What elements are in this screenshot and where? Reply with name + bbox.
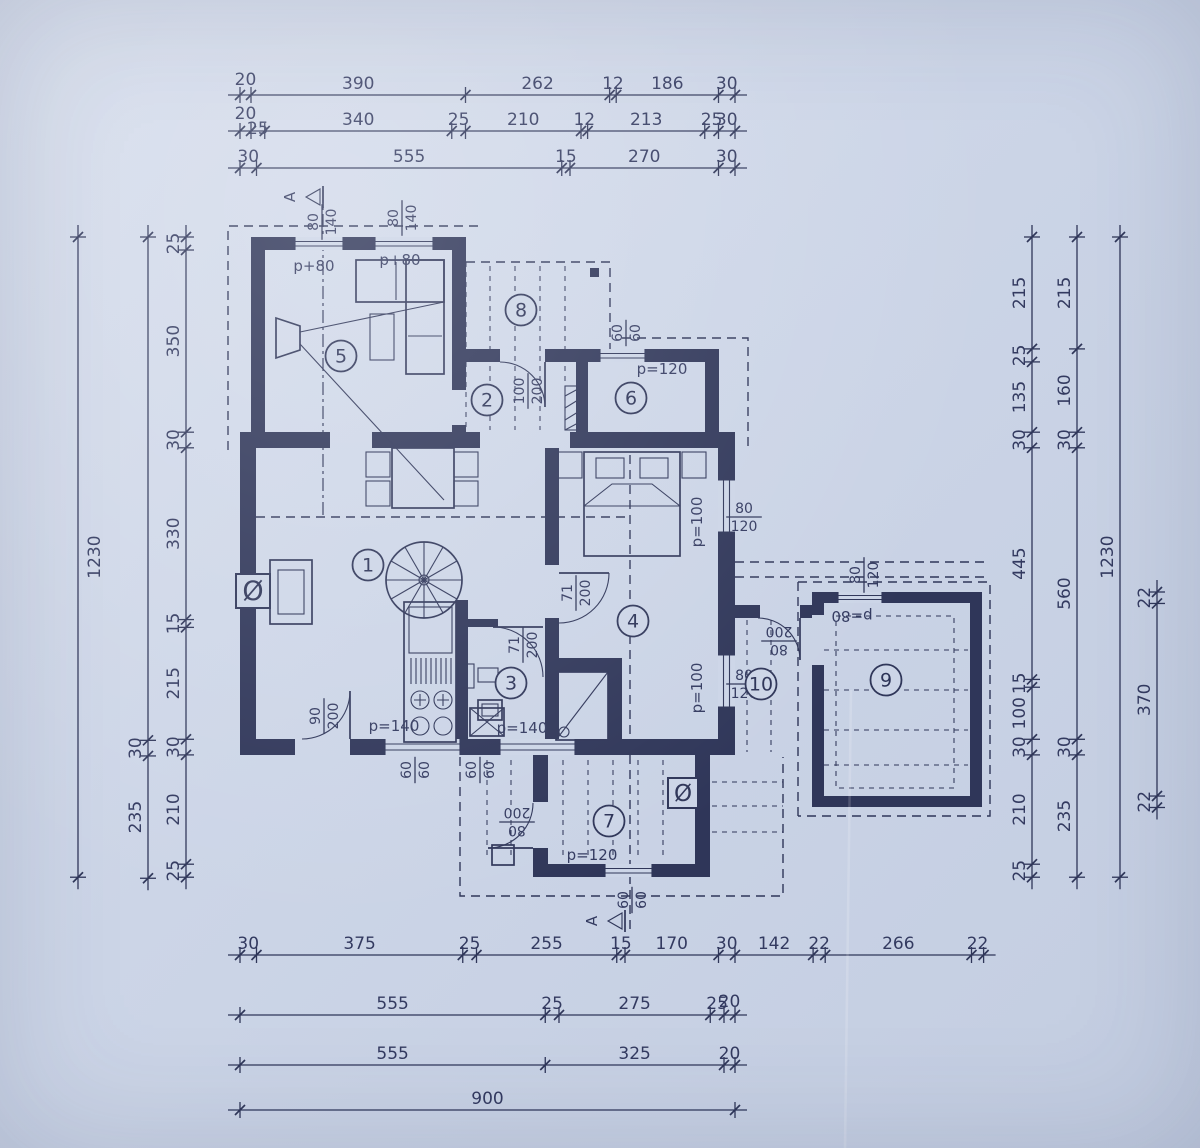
dim-label: 15 bbox=[164, 613, 184, 635]
size-numerator: 60 bbox=[616, 891, 632, 909]
walls bbox=[433, 237, 466, 250]
dim-label: 560 bbox=[1055, 577, 1075, 609]
size-denominator: 200 bbox=[530, 378, 546, 405]
window bbox=[605, 864, 652, 877]
dim-chain-right-inner: 2152513530445151003021025 bbox=[1010, 225, 1040, 889]
dim-label: 100 bbox=[1010, 697, 1030, 729]
dim-label: 25 bbox=[247, 119, 269, 139]
dining-table bbox=[366, 448, 478, 508]
room-digit: 1 bbox=[362, 555, 374, 577]
dim-chain-left-outer: 1230 bbox=[70, 225, 105, 889]
terrace-post-dot bbox=[590, 268, 599, 277]
opening-size-label: 6060 bbox=[464, 757, 498, 783]
dining-table bbox=[454, 452, 478, 477]
dim-label: 25 bbox=[1010, 345, 1030, 367]
dim-label: 210 bbox=[164, 793, 184, 825]
size-numerator: 80 bbox=[770, 641, 788, 657]
size-numerator: 80 bbox=[386, 209, 402, 227]
size-denominator: 60 bbox=[482, 761, 498, 779]
dim-label: 555 bbox=[376, 1044, 408, 1064]
dim-label: 30 bbox=[716, 110, 738, 130]
kitchen-unit bbox=[437, 694, 449, 706]
dim-label: 25 bbox=[459, 934, 481, 954]
dim-label: 186 bbox=[651, 74, 683, 94]
dim-chain-top-row-2: 202534025210122132530 bbox=[228, 104, 747, 139]
dim-label: 1230 bbox=[85, 535, 105, 578]
dim-chain-bottom-row-2: 555252752520 bbox=[228, 992, 747, 1023]
opening-size-label: 6060 bbox=[616, 887, 650, 913]
dim-label: 142 bbox=[758, 934, 790, 954]
dim-label: 30 bbox=[1055, 736, 1075, 758]
dim-label: 135 bbox=[1010, 381, 1030, 413]
dim-chain-bottom-row-4: 900 bbox=[228, 1089, 747, 1118]
walls bbox=[882, 592, 982, 603]
sofa bbox=[396, 262, 442, 336]
walls bbox=[575, 739, 735, 755]
chimney-symbol: Ø bbox=[242, 576, 263, 607]
dim-label: 20 bbox=[719, 992, 741, 1012]
room-digit: 7 bbox=[603, 811, 615, 833]
walls bbox=[240, 432, 330, 448]
kitchen-unit bbox=[414, 694, 426, 706]
size-denominator: 60 bbox=[628, 324, 644, 342]
room-digit: 5 bbox=[335, 346, 347, 368]
dim-label: 1230 bbox=[1098, 535, 1118, 578]
size-numerator: 100 bbox=[512, 378, 528, 405]
dim-label: 30 bbox=[126, 737, 146, 759]
dining-table bbox=[366, 452, 390, 477]
opening-height-label: p+80 bbox=[379, 251, 420, 269]
dim-chain-garage-right: 2237022 bbox=[1135, 580, 1165, 819]
dim-label: 30 bbox=[1010, 429, 1030, 451]
room-number-3: 3 bbox=[496, 668, 527, 699]
dim-label: 390 bbox=[342, 74, 374, 94]
opening-size-label: 100200 bbox=[512, 373, 546, 409]
walls bbox=[705, 362, 719, 432]
opening-size-label: 71200 bbox=[560, 575, 594, 611]
size-numerator: 80 bbox=[306, 213, 322, 231]
window bbox=[375, 237, 433, 250]
dim-label: 215 bbox=[1010, 277, 1030, 309]
dim-label: 330 bbox=[164, 517, 184, 549]
terrace-7-roof-lines bbox=[712, 782, 783, 832]
walls bbox=[545, 448, 559, 565]
tv bbox=[300, 302, 444, 500]
dim-label: 25 bbox=[164, 860, 184, 882]
opening-size-label: 80200 bbox=[761, 623, 797, 657]
dining-table bbox=[454, 481, 478, 506]
opening-height-label: p=140 bbox=[369, 717, 420, 735]
opening-height-label: p=140 bbox=[497, 719, 548, 737]
opening-size-label: 6060 bbox=[399, 757, 433, 783]
bed bbox=[640, 458, 668, 478]
walls bbox=[533, 864, 605, 877]
opening-size-label: 71200 bbox=[507, 627, 541, 663]
dim-label: 370 bbox=[1135, 684, 1155, 716]
window bbox=[500, 739, 575, 755]
shower bbox=[556, 672, 608, 740]
garage-inner-dashed bbox=[836, 616, 954, 788]
walls bbox=[343, 237, 375, 250]
walls bbox=[460, 739, 500, 755]
walls bbox=[812, 796, 982, 807]
kitchen-unit bbox=[411, 658, 451, 684]
dim-chain-bottom-row-1: 303752525515170301422226622 bbox=[228, 934, 996, 963]
opening-size-label: 80120 bbox=[848, 557, 882, 593]
garage-overhang bbox=[798, 582, 990, 816]
room-number-4: 4 bbox=[618, 606, 649, 637]
opening-labels: p+80p+80p=120p=100p=100p=140p=140p=120p=… bbox=[242, 200, 882, 913]
dim-chain-bottom-row-3: 55532520 bbox=[228, 1044, 747, 1073]
dim-label: 30 bbox=[716, 147, 738, 167]
walls bbox=[718, 448, 735, 480]
dim-label: 375 bbox=[343, 934, 375, 954]
sofa bbox=[356, 260, 444, 374]
dim-label: 170 bbox=[656, 934, 688, 954]
walls bbox=[533, 755, 548, 802]
size-numerator: 90 bbox=[308, 707, 324, 725]
dim-label: 30 bbox=[716, 74, 738, 94]
dim-label: 25 bbox=[541, 994, 563, 1014]
section-triangle-icon bbox=[306, 189, 320, 205]
walls bbox=[466, 349, 500, 362]
bed bbox=[584, 484, 680, 506]
sofa bbox=[370, 314, 394, 360]
fireplace bbox=[278, 570, 304, 614]
tv bbox=[276, 318, 300, 358]
dim-label: 255 bbox=[530, 934, 562, 954]
room-digit: 9 bbox=[880, 670, 892, 692]
dim-label: 215 bbox=[164, 667, 184, 699]
dining-table bbox=[366, 481, 390, 506]
room-number-1: 1 bbox=[353, 550, 384, 581]
dim-label: 900 bbox=[471, 1089, 503, 1109]
dim-label: 30 bbox=[237, 934, 259, 954]
room-number-9: 9 bbox=[871, 665, 902, 696]
tv bbox=[276, 302, 444, 500]
section-triangle-icon bbox=[608, 913, 622, 929]
walls bbox=[695, 755, 710, 877]
size-denominator: 60 bbox=[417, 761, 433, 779]
fireplace bbox=[270, 560, 312, 624]
opening-size-label: 6060 bbox=[610, 320, 644, 346]
window bbox=[500, 739, 575, 755]
dim-label: 30 bbox=[1055, 429, 1075, 451]
dim-label: 20 bbox=[235, 70, 257, 90]
dim-label: 22 bbox=[1135, 587, 1155, 609]
walls bbox=[570, 432, 735, 448]
floor-plan-canvas: 2039026212186302025340252101221325303055… bbox=[0, 0, 1200, 1148]
opening-height-label: p=80 bbox=[831, 607, 872, 625]
dim-chain-right-outer: 1230 bbox=[1098, 225, 1128, 889]
dim-label: 12 bbox=[573, 110, 595, 130]
dim-label: 30 bbox=[1010, 736, 1030, 758]
size-numerator: 80 bbox=[735, 501, 753, 517]
size-denominator: 60 bbox=[634, 891, 650, 909]
window bbox=[605, 864, 652, 877]
kitchen-unit bbox=[434, 717, 452, 735]
room-number-6: 6 bbox=[616, 383, 647, 414]
walls bbox=[452, 425, 466, 432]
dim-label: 22 bbox=[808, 934, 830, 954]
dim-label: 210 bbox=[507, 110, 539, 130]
room-digit: 8 bbox=[515, 300, 527, 322]
room-number-7: 7 bbox=[594, 806, 625, 837]
size-denominator: 200 bbox=[766, 623, 793, 639]
blueprint-photo: 2039026212186302025340252101221325303055… bbox=[0, 0, 1200, 1148]
walls bbox=[812, 665, 824, 807]
size-numerator: 80 bbox=[848, 566, 864, 584]
dim-label: 25 bbox=[164, 233, 184, 255]
dim-label: 160 bbox=[1055, 374, 1075, 406]
dim-label: 215 bbox=[1055, 277, 1075, 309]
dim-chain-right-middle: 2151603056030235 bbox=[1055, 225, 1085, 889]
dim-label: 30 bbox=[164, 429, 184, 451]
dim-label: 235 bbox=[126, 801, 146, 833]
dim-label: 350 bbox=[164, 325, 184, 357]
bed bbox=[558, 452, 706, 556]
chimney-symbol: Ø bbox=[674, 781, 692, 807]
dim-label: 262 bbox=[521, 74, 553, 94]
section-marker: A bbox=[281, 186, 323, 208]
bed bbox=[682, 452, 706, 478]
room-number-2: 2 bbox=[472, 385, 503, 416]
room-number-5: 5 bbox=[326, 341, 357, 372]
dim-chain-left-middle: 30235 bbox=[126, 225, 156, 890]
dim-label: 22 bbox=[967, 934, 989, 954]
dim-label: 213 bbox=[630, 110, 662, 130]
walls bbox=[240, 739, 295, 755]
walls bbox=[608, 672, 622, 742]
opening-height-label: p+80 bbox=[293, 257, 334, 275]
dimension-chains: 2039026212186302025340252101221325303055… bbox=[70, 70, 1165, 1118]
section-marker: A bbox=[583, 910, 625, 932]
dim-label: 340 bbox=[342, 110, 374, 130]
size-numerator: 80 bbox=[508, 822, 526, 838]
walls bbox=[251, 237, 295, 250]
walls bbox=[800, 605, 812, 618]
size-denominator: 200 bbox=[525, 632, 541, 659]
bathroom-fixtures bbox=[482, 704, 498, 716]
walls bbox=[570, 349, 600, 362]
size-denominator: 200 bbox=[326, 703, 342, 730]
dim-label: 20 bbox=[719, 1044, 741, 1064]
dim-label: 12 bbox=[602, 74, 624, 94]
opening-size-label: 90200 bbox=[308, 698, 342, 734]
size-denominator: 140 bbox=[324, 209, 340, 236]
dim-label: 555 bbox=[376, 994, 408, 1014]
dim-label: 270 bbox=[628, 147, 660, 167]
section-letter: A bbox=[583, 915, 601, 926]
dim-label: 325 bbox=[618, 1044, 650, 1064]
dim-label: 235 bbox=[1055, 800, 1075, 832]
dim-chain-left-inner: 2535030330152153021025 bbox=[164, 225, 194, 889]
window bbox=[375, 237, 433, 250]
walls bbox=[812, 592, 824, 615]
opening-height-label: p=120 bbox=[637, 360, 688, 378]
walls bbox=[545, 349, 570, 362]
size-numerator: 60 bbox=[399, 761, 415, 779]
shower bbox=[559, 727, 569, 737]
terrace-8-outline bbox=[466, 262, 610, 352]
dim-label: 25 bbox=[1010, 860, 1030, 882]
walls bbox=[718, 532, 735, 655]
dim-chain-top-row-3: 305551527030 bbox=[228, 147, 747, 176]
size-numerator: 71 bbox=[507, 636, 523, 654]
dim-chain-top-row-1: 203902621218630 bbox=[228, 70, 747, 103]
bed bbox=[558, 452, 582, 478]
window bbox=[295, 237, 343, 250]
dim-label: 555 bbox=[393, 147, 425, 167]
room-digit: 3 bbox=[505, 673, 517, 695]
dim-label: 266 bbox=[882, 934, 914, 954]
walls bbox=[548, 658, 622, 672]
window bbox=[295, 237, 343, 250]
section-letter: A bbox=[281, 191, 299, 202]
size-denominator: 120 bbox=[866, 562, 882, 589]
dim-label: 30 bbox=[237, 147, 259, 167]
walls bbox=[734, 605, 760, 618]
dim-label: 15 bbox=[610, 934, 632, 954]
window bbox=[838, 592, 882, 603]
size-numerator: 60 bbox=[464, 761, 480, 779]
opening-size-label: 80140 bbox=[386, 200, 420, 236]
paper-crease bbox=[845, 690, 851, 1148]
dim-label: 15 bbox=[1010, 673, 1030, 695]
size-numerator: 60 bbox=[610, 324, 626, 342]
dim-label: 15 bbox=[555, 147, 577, 167]
dim-label: 445 bbox=[1010, 547, 1030, 579]
dim-label: 30 bbox=[164, 736, 184, 758]
walls bbox=[350, 739, 385, 755]
dim-label: 275 bbox=[618, 994, 650, 1014]
dim-label: 30 bbox=[716, 934, 738, 954]
opening-height-label: p=120 bbox=[567, 846, 618, 864]
size-denominator: 200 bbox=[578, 580, 594, 607]
room-number-10: 10 bbox=[746, 669, 777, 700]
dim-label: 25 bbox=[448, 110, 470, 130]
sofa bbox=[406, 260, 444, 374]
room-number-8: 8 bbox=[506, 295, 537, 326]
walls bbox=[251, 237, 265, 432]
size-numerator: 71 bbox=[560, 584, 576, 602]
opening-height-label: p=100 bbox=[688, 663, 706, 714]
window bbox=[838, 592, 882, 603]
size-denominator: 200 bbox=[504, 804, 531, 820]
walls bbox=[970, 592, 982, 807]
bed bbox=[596, 458, 624, 478]
shower bbox=[556, 672, 608, 740]
bed bbox=[584, 452, 680, 556]
room-digit: 6 bbox=[625, 388, 637, 410]
dim-label: 22 bbox=[1135, 791, 1155, 813]
size-denominator: 120 bbox=[731, 519, 758, 535]
walls bbox=[452, 250, 466, 390]
kitchen-unit bbox=[409, 607, 452, 653]
room-digit: 2 bbox=[481, 390, 493, 412]
size-denominator: 140 bbox=[404, 205, 420, 232]
opening-height-label: p=100 bbox=[688, 497, 706, 548]
dim-label: 210 bbox=[1010, 793, 1030, 825]
room-digit: 10 bbox=[749, 674, 773, 696]
room-digit: 4 bbox=[627, 611, 639, 633]
